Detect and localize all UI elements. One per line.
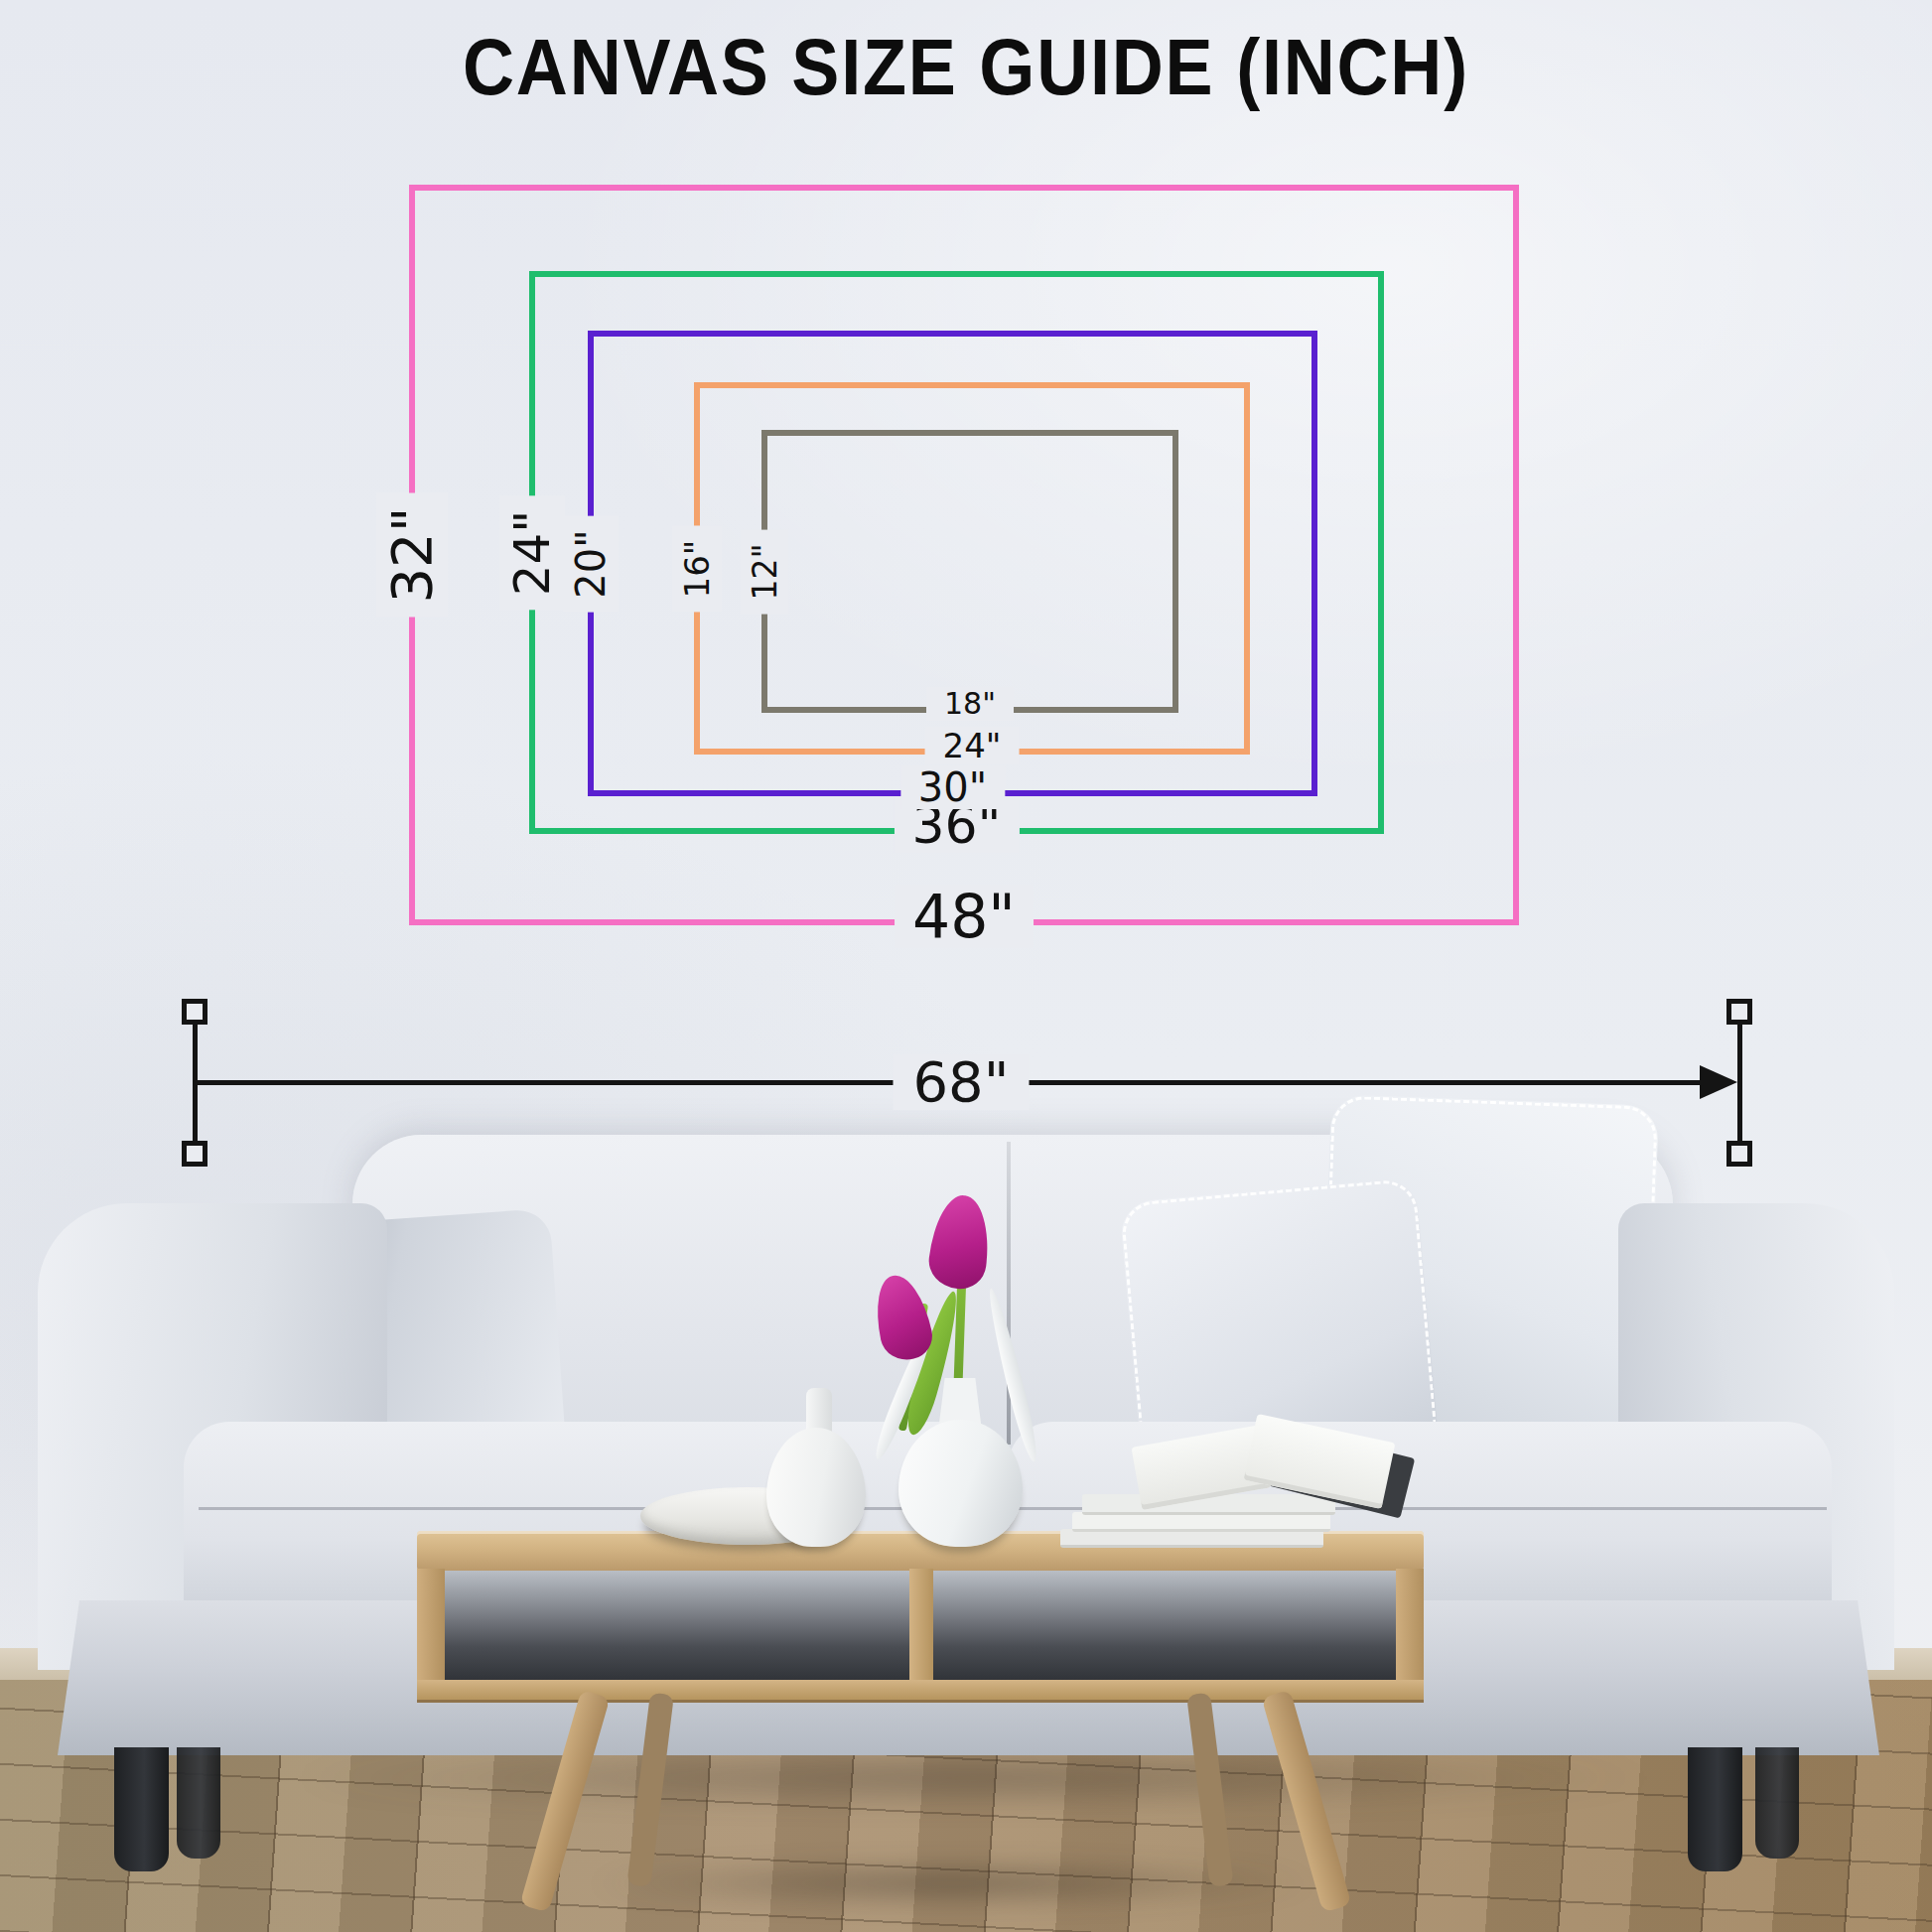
measurement-handle-icon <box>1726 999 1752 1025</box>
tulip-vase <box>898 1420 1023 1547</box>
height-label-16: 16" <box>672 525 722 612</box>
canvas-rect-18x12: 12" 18" <box>761 430 1178 713</box>
table-side-panel <box>417 1569 445 1683</box>
measurement-end-bar-right <box>1737 1023 1742 1144</box>
height-label-32: 32" <box>376 492 448 617</box>
measurement-handle-icon <box>182 1141 207 1167</box>
sofa-leg <box>114 1747 169 1871</box>
height-label-20: 20" <box>563 515 619 612</box>
width-label-24: 24" <box>925 727 1020 764</box>
magazine <box>1072 1512 1330 1532</box>
sofa-leg <box>1688 1747 1742 1871</box>
measurement-end-bar-left <box>193 1023 198 1144</box>
table-divider <box>909 1569 933 1683</box>
sofa-leg <box>177 1747 220 1859</box>
table-side-panel <box>1396 1569 1424 1683</box>
width-label-18: 18" <box>926 687 1014 721</box>
table-shelf-opening <box>933 1571 1396 1680</box>
width-label-30: 30" <box>900 765 1005 809</box>
arrow-right-icon <box>1700 1065 1737 1099</box>
canvas-size-guide-scene: CANVAS SIZE GUIDE (INCH) 32" 48" 24" 36"… <box>0 0 1932 1932</box>
sofa-width-label: 68" <box>893 1054 1029 1110</box>
table-floor-shadow <box>467 1855 1440 1912</box>
height-label-24: 24" <box>499 495 565 610</box>
table-shelf-opening <box>445 1571 909 1680</box>
width-label-48: 48" <box>895 885 1034 948</box>
height-label-12: 12" <box>741 529 789 614</box>
measurement-handle-icon <box>182 999 207 1025</box>
sofa-leg <box>1755 1747 1799 1859</box>
page-title: CANVAS SIZE GUIDE (INCH) <box>463 22 1469 113</box>
measurement-handle-icon <box>1726 1141 1752 1167</box>
